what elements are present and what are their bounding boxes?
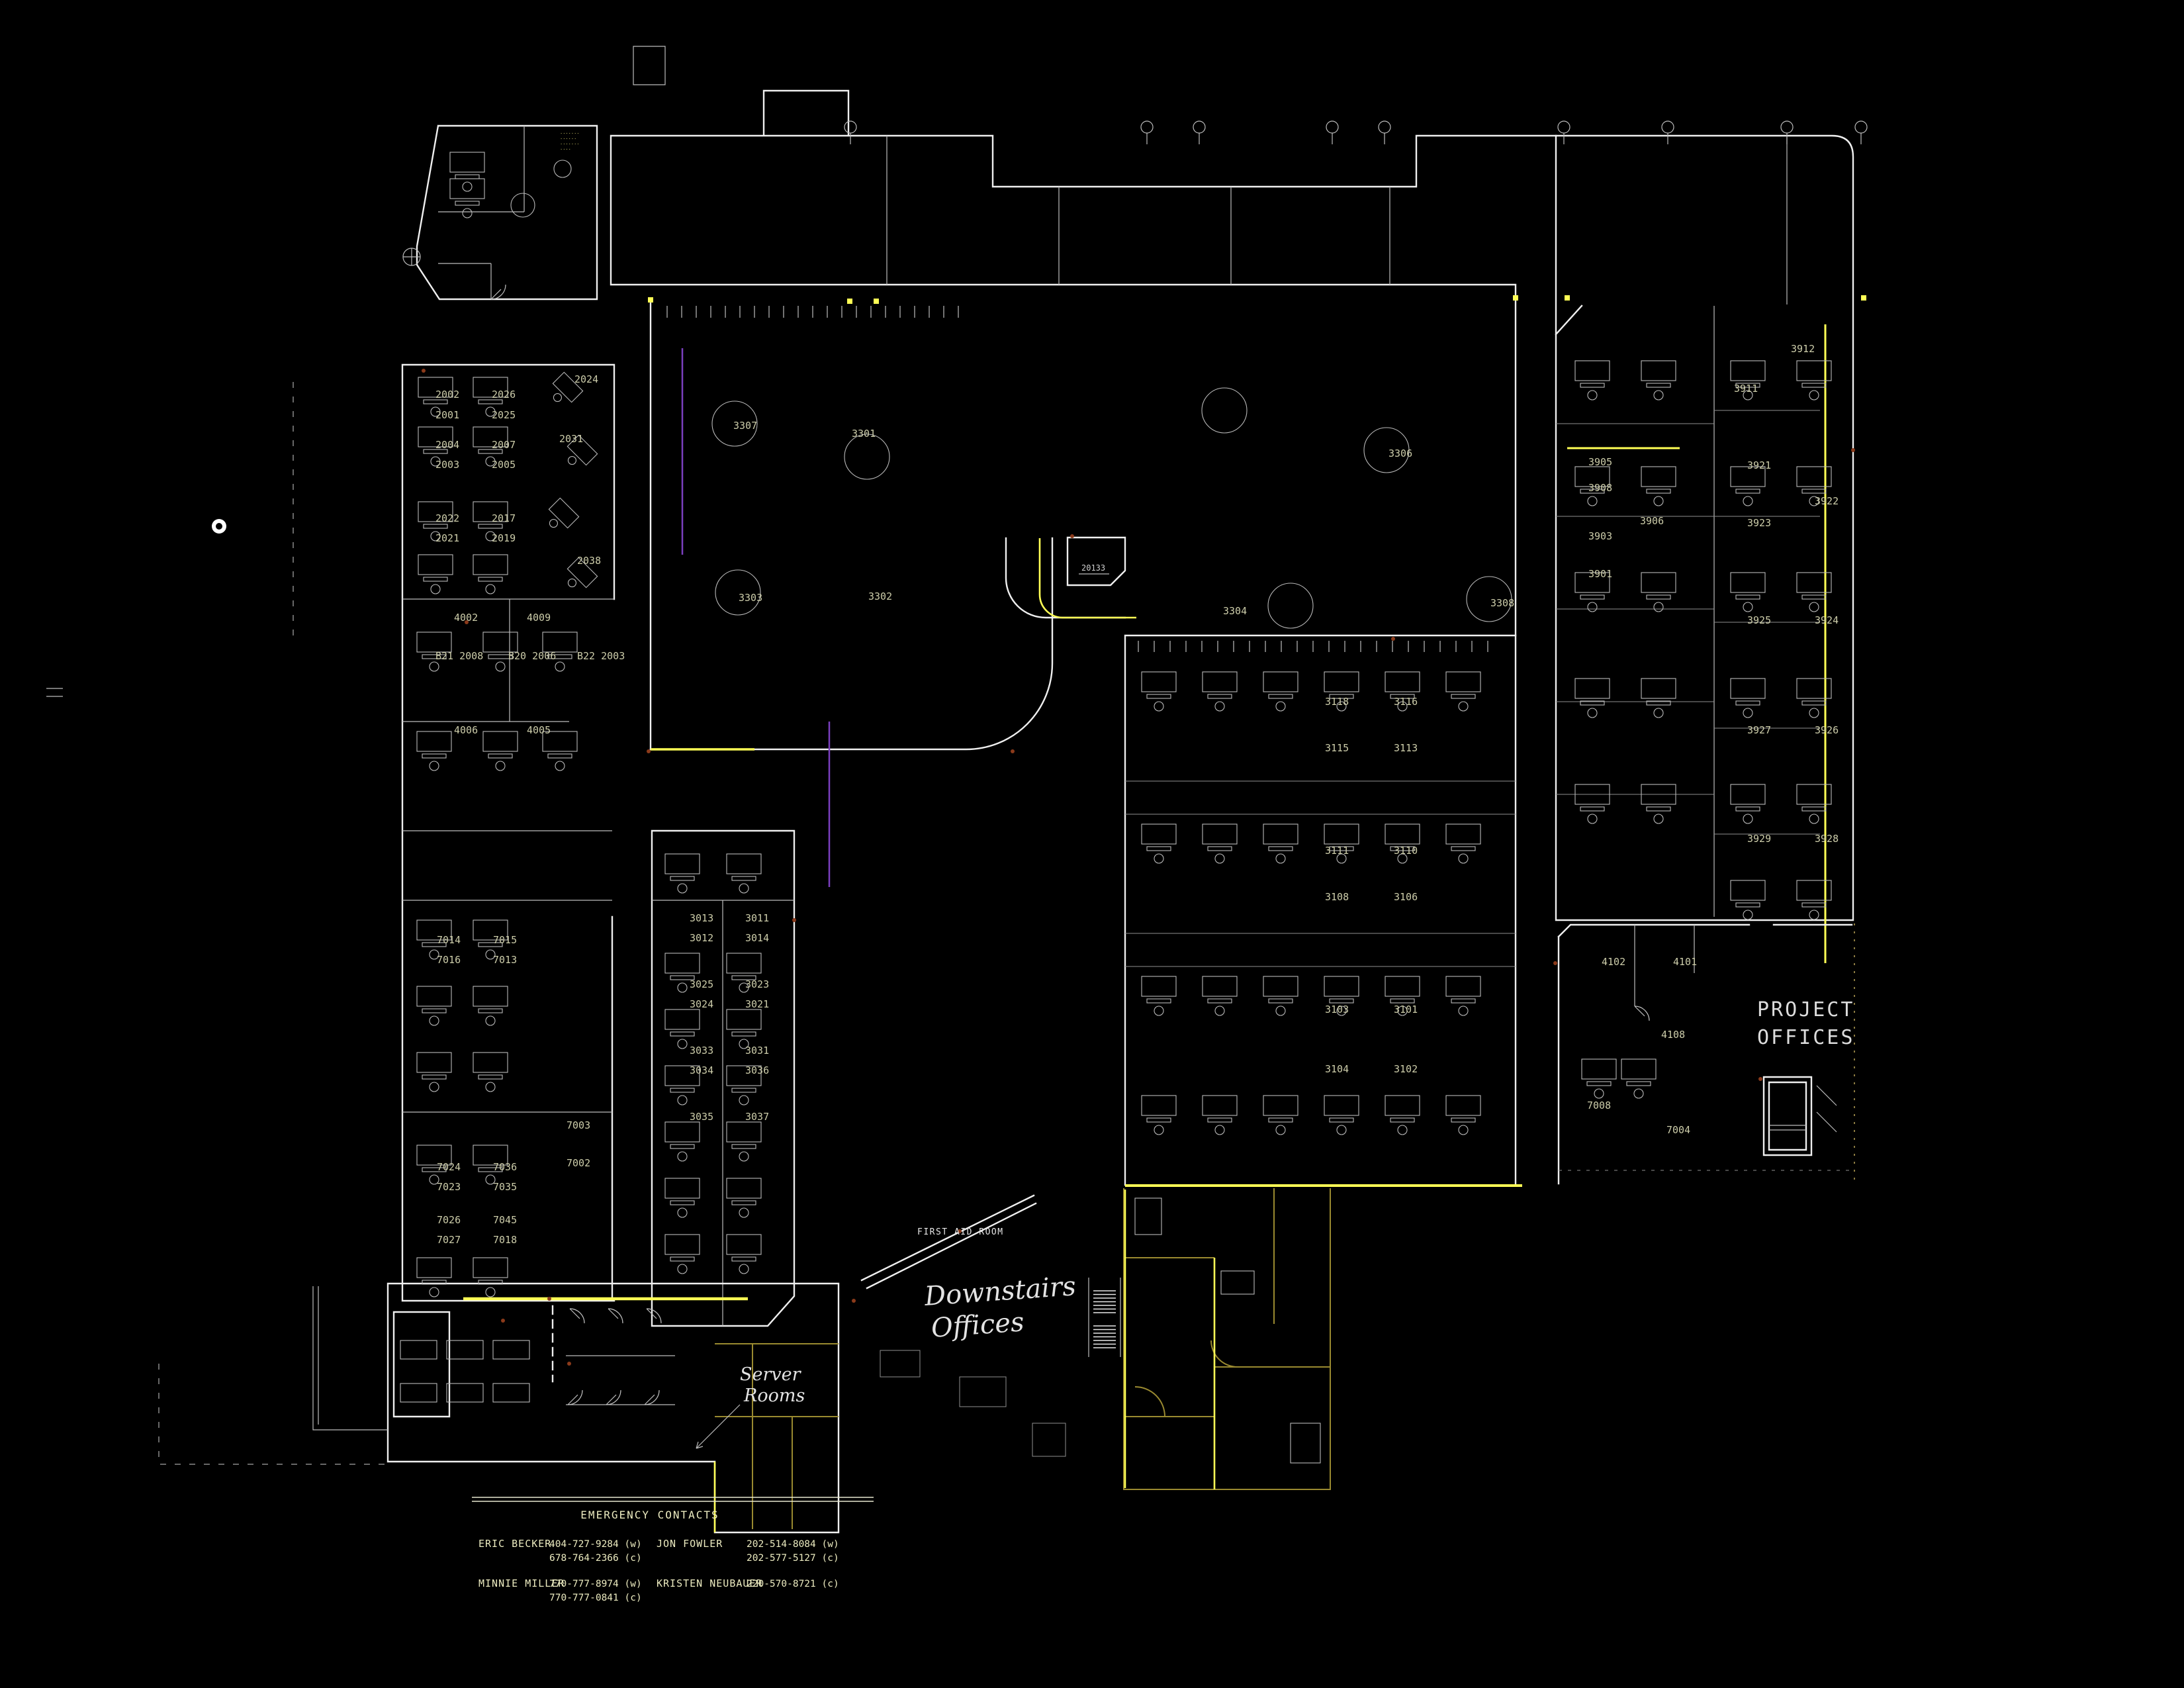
room-label: 2007 — [492, 439, 516, 451]
room-label: 4009 — [527, 612, 551, 624]
room-label: 4102 — [1602, 956, 1625, 968]
legend-contact-name: JON FOWLER — [657, 1538, 723, 1550]
room-label: B20 2006 — [508, 650, 556, 662]
legend-contact-phone: 202-514-8084 (w) — [747, 1539, 839, 1550]
room-label: B21 2008 — [435, 650, 483, 662]
server-rooms-note-line1: Server — [740, 1364, 802, 1385]
room-label: 3925 — [1747, 614, 1771, 626]
room-label: 3921 — [1747, 459, 1771, 471]
room-label: 3115 — [1325, 742, 1349, 754]
room-label: 2003 — [435, 459, 459, 471]
room-label: 3034 — [690, 1064, 713, 1076]
yellow-node — [847, 299, 852, 304]
room-label: 3912 — [1791, 343, 1815, 355]
red-speck — [422, 369, 426, 373]
red-speck — [1553, 961, 1557, 965]
room-label: 3301 — [852, 428, 876, 440]
room-label: 3102 — [1394, 1063, 1418, 1075]
room-label: 3927 — [1747, 724, 1771, 736]
room-label: 3905 — [1588, 456, 1612, 468]
room-label: 3116 — [1394, 696, 1418, 708]
red-speck — [647, 749, 651, 753]
legend-contact-phone: 770-777-0841 (c) — [549, 1593, 642, 1603]
room-label: 3304 — [1223, 605, 1247, 617]
room-label: 3303 — [739, 592, 762, 604]
downstairs-offices-line2: Offices — [930, 1307, 1024, 1344]
red-speck — [1011, 749, 1015, 753]
room-label: 7003 — [567, 1119, 590, 1131]
room-label: 3036 — [745, 1064, 769, 1076]
room-label: 2002 — [435, 389, 459, 400]
circle-cross-marker — [403, 248, 420, 265]
room-label: 2019 — [492, 532, 516, 544]
room-label: 4002 — [454, 612, 478, 624]
room-label: 3306 — [1388, 447, 1412, 459]
room-label: 7026 — [437, 1214, 461, 1226]
red-speck — [852, 1299, 856, 1303]
room-label: 3302 — [868, 590, 892, 602]
legend-contact-phone: 404-727-9284 (w) — [549, 1539, 642, 1550]
project-offices-line1: PROJECT — [1757, 998, 1854, 1021]
room-label: 3011 — [745, 912, 769, 924]
legend-title: EMERGENCY CONTACTS — [580, 1509, 719, 1521]
red-speck — [1070, 534, 1074, 538]
room-label: 2021 — [435, 532, 459, 544]
room-label: 7023 — [437, 1181, 461, 1193]
room-label: 7014 — [437, 934, 461, 946]
room-label: 3103 — [1325, 1004, 1349, 1015]
room-label: 3926 — [1815, 724, 1839, 736]
room-label: 4108 — [1661, 1029, 1685, 1041]
room-label: B22 2003 — [577, 650, 625, 662]
room-label: 3025 — [690, 978, 713, 990]
room-label: 3901 — [1588, 568, 1612, 580]
room-label: 7002 — [567, 1157, 590, 1169]
room-label: 7035 — [493, 1181, 517, 1193]
room-label: 3906 — [1640, 515, 1664, 527]
room-label: 3037 — [745, 1111, 769, 1123]
drawing-background — [0, 0, 2184, 1688]
room-label: 3013 — [690, 912, 713, 924]
room-label: 3012 — [690, 932, 713, 944]
tiny-note-line: ···· — [560, 147, 571, 152]
first-aid-room-label: FIRST AID ROOM — [917, 1227, 1004, 1237]
server-rooms-note-line2: Rooms — [743, 1385, 805, 1406]
legend-contact-phone: 202-577-5127 (c) — [747, 1553, 839, 1564]
room-label: 3924 — [1815, 614, 1839, 626]
room-label: 3929 — [1747, 833, 1771, 845]
room-label: 7013 — [493, 954, 517, 966]
room-label: 3023 — [745, 978, 769, 990]
yellow-node — [648, 297, 653, 303]
project-offices-line2: OFFICES — [1757, 1026, 1854, 1049]
room-label: 3908 — [1588, 482, 1612, 494]
yellow-node — [874, 299, 879, 304]
red-speck — [1851, 448, 1855, 452]
room-label: 2017 — [492, 512, 516, 524]
tiny-note-line: ······· — [560, 142, 580, 147]
tiny-note-line: ······ — [560, 136, 576, 142]
room-label: 2025 — [492, 409, 516, 421]
room-label: 3021 — [745, 998, 769, 1010]
red-speck — [1391, 637, 1395, 641]
room-label: 3308 — [1490, 597, 1514, 609]
room-label: 7018 — [493, 1234, 517, 1246]
room-label: 7004 — [1666, 1124, 1690, 1136]
room-label: 3923 — [1747, 517, 1771, 529]
room-label: 3014 — [745, 932, 769, 944]
room-label: 4101 — [1673, 956, 1697, 968]
room-label: 7045 — [493, 1214, 517, 1226]
room-label: 3101 — [1394, 1004, 1418, 1015]
room-label: 3031 — [745, 1045, 769, 1056]
room-label: 7016 — [437, 954, 461, 966]
room-label: 3104 — [1325, 1063, 1349, 1075]
room-label: 3110 — [1394, 845, 1418, 857]
legend-contact-phone: 220-570-8721 (c) — [747, 1579, 839, 1589]
room-label: 7036 — [493, 1161, 517, 1173]
red-speck — [501, 1319, 505, 1323]
red-speck — [1758, 1077, 1762, 1081]
room-label: 4005 — [527, 724, 551, 736]
yellow-node — [1861, 295, 1866, 301]
floorplan-svg: FIRST AID ROOM Downstairs Offices Server… — [0, 0, 2184, 1688]
room-label: 3307 — [733, 420, 757, 432]
room-label: 3928 — [1815, 833, 1839, 845]
room-label: 4006 — [454, 724, 478, 736]
room-label: 7008 — [1587, 1100, 1611, 1111]
room-label: 3911 — [1734, 383, 1758, 395]
yellow-node — [1513, 295, 1518, 301]
column-donut-marker — [212, 519, 226, 534]
room-label: 3108 — [1325, 891, 1349, 903]
red-speck — [567, 1362, 571, 1366]
legend-contact-phone: 770-777-8974 (w) — [549, 1579, 642, 1589]
room-label: 7015 — [493, 934, 517, 946]
room-label: 3118 — [1325, 696, 1349, 708]
tiny-note-line: ······· — [560, 131, 580, 136]
room-label: 2026 — [492, 389, 516, 400]
yellow-node — [1565, 295, 1570, 301]
room-label: 3903 — [1588, 530, 1612, 542]
room-label: 2022 — [435, 512, 459, 524]
room-label: 2004 — [435, 439, 459, 451]
room-label: 7024 — [437, 1161, 461, 1173]
room-label: 3922 — [1815, 495, 1839, 507]
room-label: 2005 — [492, 459, 516, 471]
room-label: 3033 — [690, 1045, 713, 1056]
room-label: 2001 — [435, 409, 459, 421]
room-label: 3111 — [1325, 845, 1349, 857]
room-label: 2038 — [577, 555, 601, 567]
room-label: 7027 — [437, 1234, 461, 1246]
red-speck — [792, 918, 796, 922]
room-label: 2024 — [574, 373, 598, 385]
room-label: 3113 — [1394, 742, 1418, 754]
legend-contact-name: ERIC BECKER — [478, 1538, 551, 1550]
room-label: 3024 — [690, 998, 713, 1010]
area-note: 20133 — [1081, 563, 1105, 573]
red-speck — [547, 1297, 551, 1301]
legend-contact-phone: 678-764-2366 (c) — [549, 1553, 642, 1564]
room-label: 2031 — [559, 433, 583, 445]
room-label: 3106 — [1394, 891, 1418, 903]
room-label: 3035 — [690, 1111, 713, 1123]
